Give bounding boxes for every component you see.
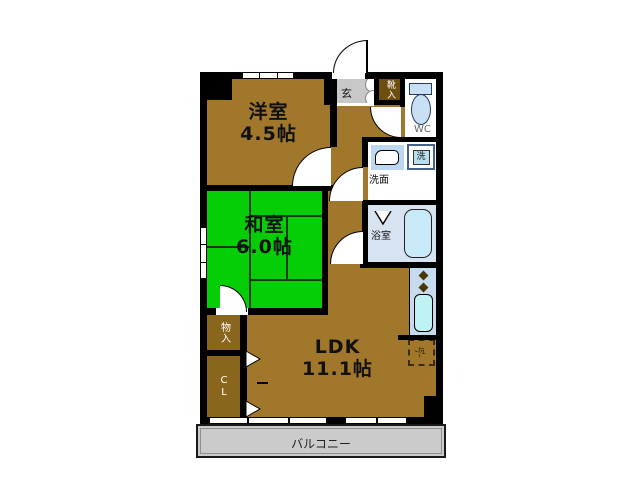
entrance-label: 玄 xyxy=(341,85,352,101)
stove-burner-icon xyxy=(419,283,429,293)
window-frame-tick xyxy=(201,244,206,245)
window-frame-tick xyxy=(376,418,378,423)
ldk-name: LDK xyxy=(315,337,361,359)
ldk-label: LDK 11.1帖 xyxy=(255,330,420,388)
window-frame-tick xyxy=(259,73,260,78)
stove-burner-icon xyxy=(419,271,429,281)
western-room-label: 洋室 4.5帖 xyxy=(207,92,330,156)
storage-closet: 物入 xyxy=(207,315,240,350)
entrance-area xyxy=(331,79,374,103)
window-frame-tick xyxy=(288,418,290,423)
wall xyxy=(362,142,368,167)
western-room-name: 洋室 xyxy=(248,102,288,124)
japanese-room-size: 6.0帖 xyxy=(236,237,293,259)
balcony: バルコニー xyxy=(196,424,446,458)
bathtub-icon xyxy=(404,209,432,258)
corner-step xyxy=(424,396,443,424)
kitchen-sink-icon xyxy=(414,294,433,332)
window-frame-tick xyxy=(247,418,249,423)
storage-label: 物入 xyxy=(219,322,229,344)
outer-wall-right xyxy=(436,72,443,424)
japanese-room-name: 和室 xyxy=(244,215,284,237)
entrance-step-line xyxy=(331,103,374,106)
wall xyxy=(360,262,437,268)
bathroom-label: 浴室 xyxy=(371,227,391,242)
washing-machine-icon: 洗 xyxy=(407,144,435,170)
shoe-cabinet-label: 靴入 xyxy=(385,80,394,100)
shoe-cabinet: 靴入 xyxy=(379,79,400,100)
washroom-label: 洗面 xyxy=(369,171,389,186)
japanese-room-label: 和室 6.0帖 xyxy=(207,207,322,267)
window-top xyxy=(243,73,293,78)
toilet-bowl-icon xyxy=(411,94,431,125)
entrance-step-curve xyxy=(365,90,374,103)
toilet-label: WC xyxy=(414,124,431,135)
balcony-label: バルコニー xyxy=(198,435,444,452)
wall xyxy=(207,350,247,356)
window-frame-tick xyxy=(201,262,206,263)
kitchen-counter xyxy=(409,268,436,335)
washing-machine-inner: 洗 xyxy=(413,150,430,165)
wall xyxy=(330,79,337,147)
closet-label: CL xyxy=(219,375,229,399)
entrance-doorway-gap xyxy=(332,72,365,79)
wall xyxy=(368,200,437,205)
washbasin-icon xyxy=(375,150,399,165)
balcony-window-left xyxy=(210,418,326,423)
wall xyxy=(400,79,405,107)
western-room-size: 4.5帖 xyxy=(240,124,297,146)
ldk-size: 11.1帖 xyxy=(302,359,373,381)
outer-wall-top xyxy=(200,72,443,79)
window-left xyxy=(201,228,206,278)
bath-folding-door-icon xyxy=(374,211,392,226)
closet: CL xyxy=(207,356,240,417)
entrance-door-arc xyxy=(333,40,368,73)
closet-folding-door-icon xyxy=(245,400,262,418)
window-frame-tick xyxy=(277,73,278,78)
wall xyxy=(322,191,328,308)
washer-label: 洗 xyxy=(416,153,425,162)
floor-plan: 玄 靴入 WC 洗面 洗 浴室 冷 物入 CL xyxy=(0,0,640,480)
